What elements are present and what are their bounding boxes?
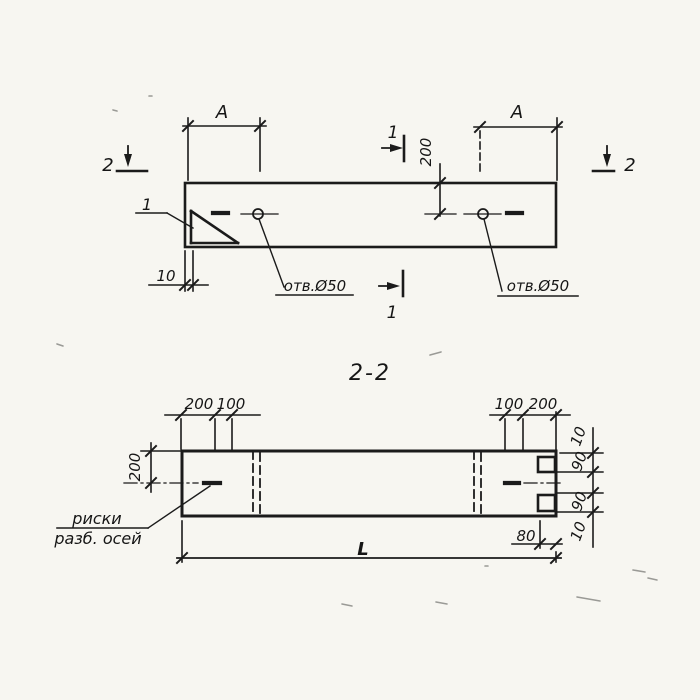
dim-10-plan: 10 — [149, 251, 208, 291]
dim-a-right-label: A — [510, 102, 523, 123]
section-mark-2-right: 2 — [593, 146, 636, 176]
drawing-sheet: 1 A — [0, 0, 700, 700]
dim-a-left: A — [183, 102, 266, 180]
hole-left — [213, 209, 278, 219]
dim-a-left-label: A — [215, 102, 228, 123]
hole-right — [464, 209, 522, 219]
hole-callout-right: отв.Ø50 — [484, 219, 578, 296]
section-view: 2-2 риски разб. осей — [53, 361, 603, 563]
dim-top-left-200: 200 — [185, 395, 214, 413]
dim-height-label: 200 — [126, 453, 144, 482]
groove-bottom — [538, 495, 555, 511]
dim-top-right-100: 100 — [495, 395, 524, 413]
dim-200-plan: 200 — [417, 138, 456, 219]
section-2-right-label: 2 — [624, 155, 635, 176]
dim-a-right: A — [474, 102, 562, 180]
dim-length-label: L — [357, 539, 368, 560]
dim-height-left: 200 — [126, 443, 181, 492]
axis-note-line2: разб. осей — [53, 529, 141, 548]
dims-right-stack: 10 90 90 10 — [557, 424, 603, 547]
dim-right-10-top: 10 — [567, 424, 590, 448]
detail-1-label: 1 — [142, 195, 152, 214]
scan-artifacts — [57, 96, 657, 606]
section-1-top-label: 1 — [388, 123, 399, 143]
dim-top-right-200: 200 — [529, 395, 558, 413]
hole-callout-left: отв.Ø50 — [259, 219, 353, 295]
dim-top-left-100: 100 — [217, 395, 246, 413]
dim-80-label: 80 — [516, 527, 535, 545]
drawing-canvas: 1 A — [0, 0, 700, 700]
dim-10-plan-label: 10 — [156, 267, 175, 285]
section-mark-1-top: 1 — [382, 123, 404, 161]
chamfer-triangle — [191, 211, 238, 243]
groove-top — [538, 457, 555, 472]
section-1-bottom-label: 1 — [387, 303, 398, 323]
hole-label-right: отв.Ø50 — [507, 277, 569, 295]
dims-top-right: 100 200 — [490, 395, 570, 449]
section-mark-2-left: 2 — [102, 146, 147, 176]
section-2-left-label: 2 — [102, 155, 113, 176]
section-title: 2-2 — [349, 361, 391, 386]
dims-top-left: 200 100 — [165, 395, 260, 449]
section-mark-1-bottom: 1 — [379, 271, 403, 323]
plan-panel-outline — [185, 183, 556, 247]
axis-note-line1: риски — [71, 509, 121, 528]
dim-right-10-bottom: 10 — [567, 519, 590, 543]
dim-length: L — [177, 521, 561, 563]
hole-label-left: отв.Ø50 — [284, 277, 346, 295]
dim-200-plan-label: 200 — [417, 138, 435, 167]
section-panel-outline — [182, 451, 556, 516]
dim-groove-depth: 80 — [512, 521, 562, 549]
plan-view: 1 A — [102, 102, 635, 323]
